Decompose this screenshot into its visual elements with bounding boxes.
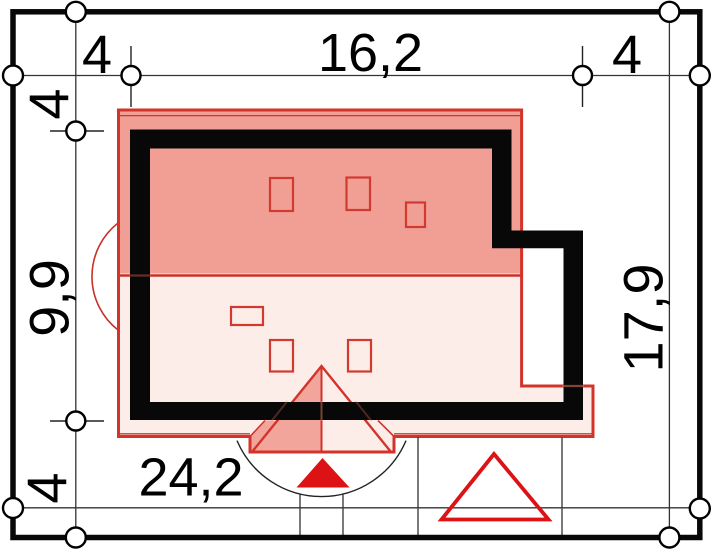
svg-text:4: 4 [82, 25, 112, 85]
svg-text:24,2: 24,2 [138, 448, 243, 508]
svg-text:17,9: 17,9 [612, 264, 675, 373]
svg-text:4: 4 [612, 25, 642, 85]
svg-text:16,2: 16,2 [318, 23, 423, 83]
svg-text:9,9: 9,9 [18, 259, 81, 337]
svg-text:4: 4 [17, 88, 80, 119]
svg-text:4: 4 [15, 472, 78, 503]
